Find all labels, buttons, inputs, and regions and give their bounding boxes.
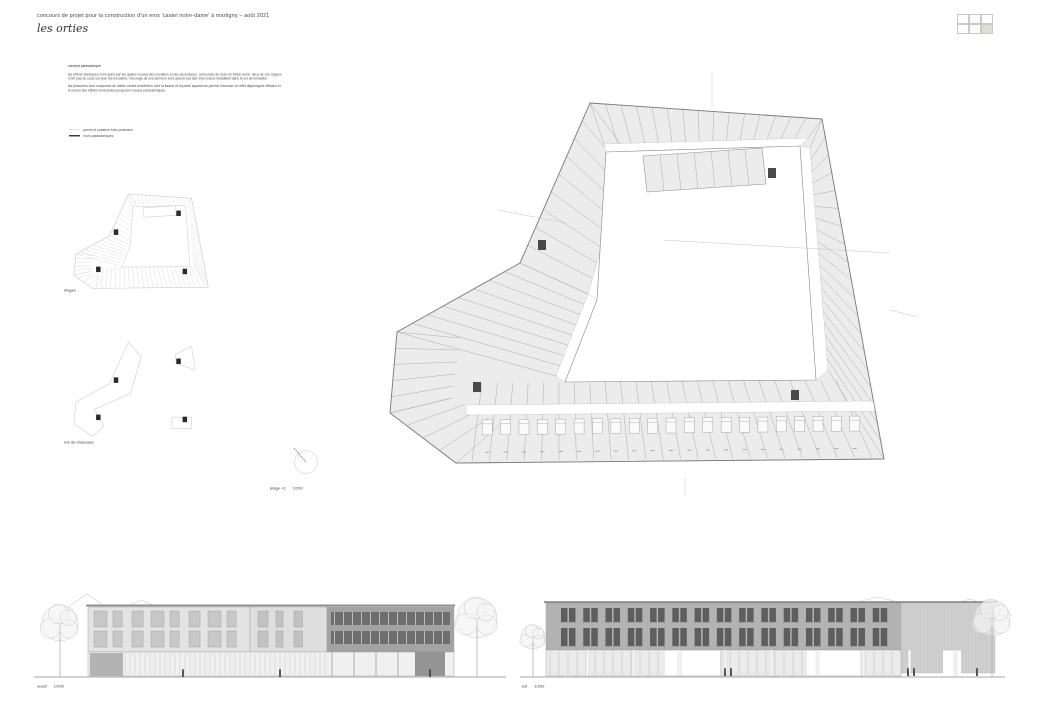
elevation-west-caption: ouest1/200 <box>37 684 64 689</box>
mini-plan-rez-caption: rez-de-chaussée <box>64 440 94 445</box>
locator-cell <box>969 14 981 24</box>
plan-legend: parois et ossature bois porteuses murs p… <box>69 128 271 140</box>
legend-label-timber: parois et ossature bois porteuses <box>83 128 132 132</box>
main-plan-scale: 1/200 <box>293 486 303 491</box>
legend-label-seismic: murs parasismiques <box>83 134 113 138</box>
floor-plan-etage-2 <box>370 60 930 510</box>
mini-plan-rez-de-chaussee <box>68 338 220 440</box>
north-arrow <box>288 443 324 479</box>
sheet-title: concours de projet pour la construction … <box>37 12 269 18</box>
main-plan-caption: étage +21/200 <box>270 486 303 491</box>
main-plan-level: étage +2 <box>270 486 286 491</box>
elevation-east-scale: 1/200 <box>534 684 544 689</box>
locator-active-cell <box>981 24 993 34</box>
locator-cell <box>957 24 969 34</box>
competition-sheet: concours de projet pour la construction … <box>0 0 1042 718</box>
concept-paragraph-1: les efforts sismiques sont repris par le… <box>68 72 282 81</box>
sheet-locator-icon <box>957 14 993 34</box>
legend-item-seismic-walls: murs parasismiques <box>69 134 271 138</box>
legend-item-timber: parois et ossature bois porteuses <box>69 128 271 132</box>
concept-paragraph-2: les planchers sont composés de dalles mi… <box>68 84 282 93</box>
elevation-west-label: ouest <box>37 684 47 689</box>
elevation-east-drawing <box>515 585 1015 685</box>
concept-heading: concept parasismique <box>68 64 282 68</box>
elevation-east-label: est <box>522 684 527 689</box>
project-name: les orties <box>37 22 88 35</box>
mini-plan-etages-caption: étages <box>64 288 76 293</box>
locator-cell <box>969 24 981 34</box>
elevation-east-caption: est1/200 <box>522 684 544 689</box>
locator-cell <box>981 14 993 24</box>
elevation-west-drawing <box>30 585 510 685</box>
concept-text-block: concept parasismique les efforts sismiqu… <box>68 64 282 96</box>
mini-plan-etages <box>68 190 220 290</box>
solid-line-symbol <box>69 135 80 136</box>
elevation-west-scale: 1/200 <box>54 684 64 689</box>
locator-cell <box>957 14 969 24</box>
